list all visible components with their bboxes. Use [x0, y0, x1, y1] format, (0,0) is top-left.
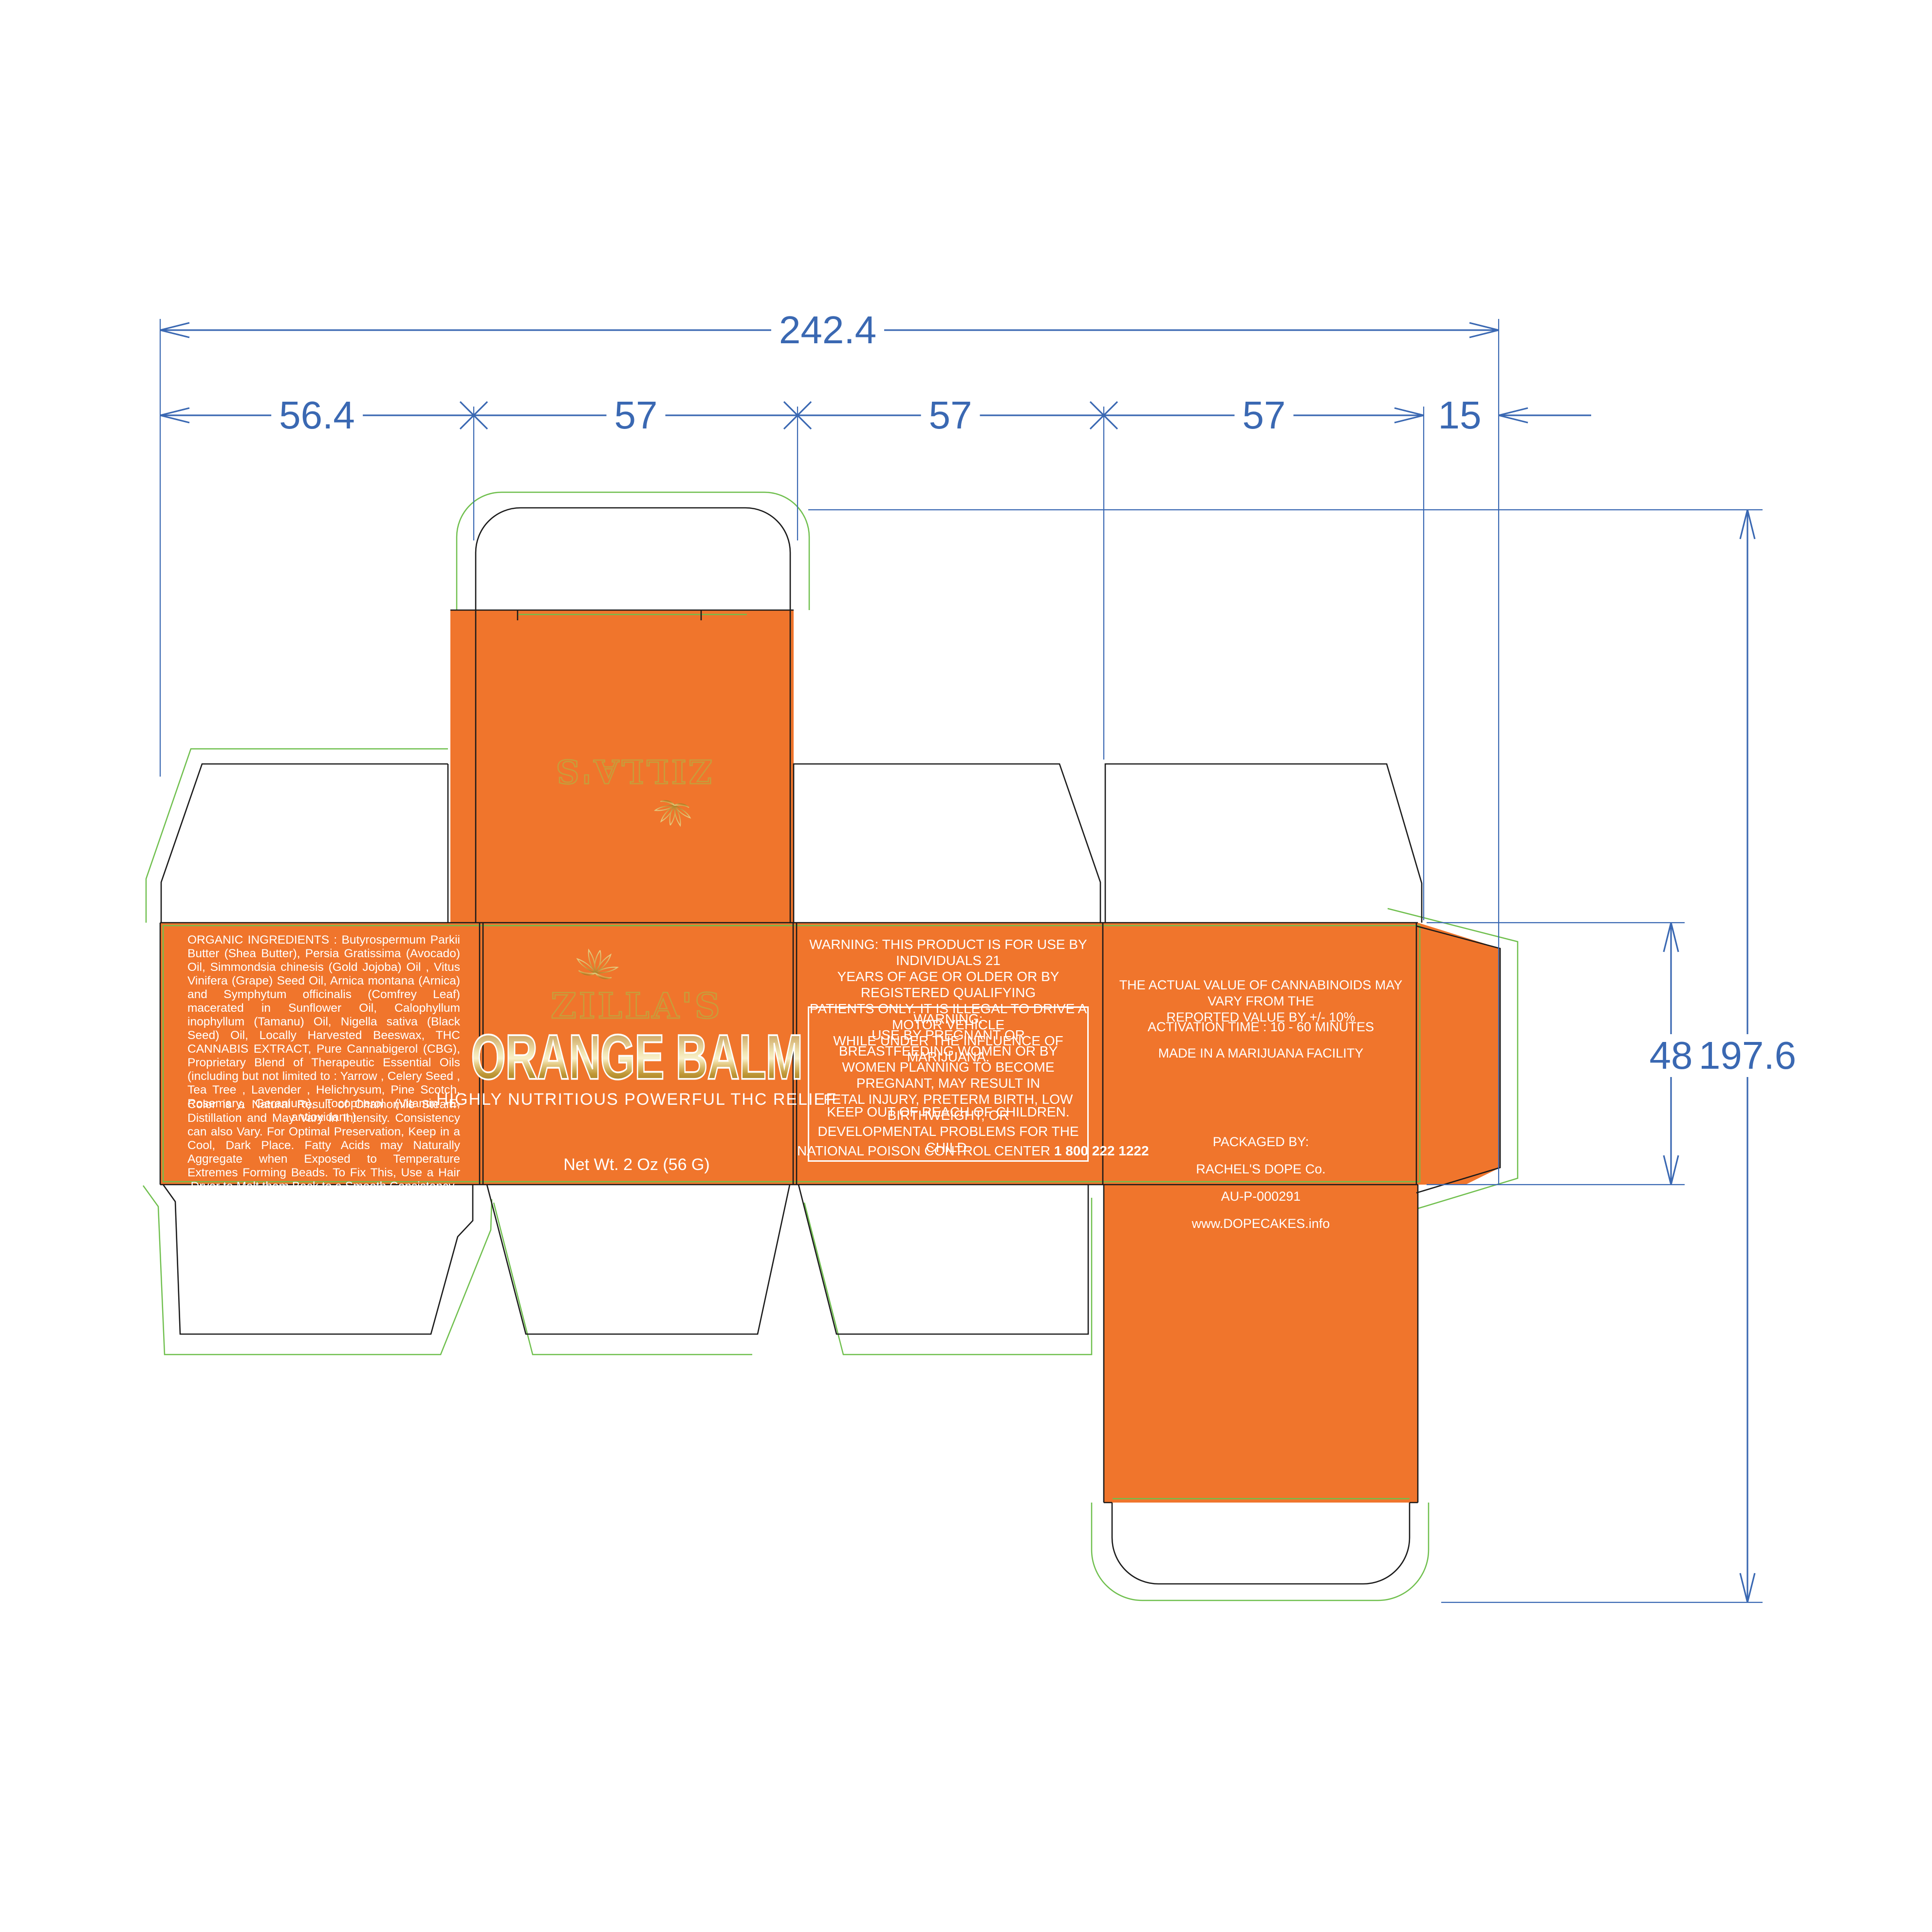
- dieline-canvas: 242.4 56.4 57 57 57 15 48 197.6: [0, 0, 1932, 1932]
- brand-logo-flipped: ZILLA'S: [511, 752, 755, 825]
- cannabis-leaf-icon: [653, 786, 695, 827]
- poison-control-label: NATIONAL POISON CONTROL CENTER: [797, 1143, 1054, 1158]
- storage-text: Color is a Natural Result of Chamomile S…: [187, 1098, 460, 1193]
- dim-segment-5: 15: [1430, 394, 1489, 437]
- dim-total-width: 242.4: [771, 309, 884, 352]
- license-number: AU-P-000291: [1109, 1189, 1413, 1203]
- dim-total-height: 197.6: [1691, 1034, 1804, 1077]
- dim-segment-3: 57: [921, 394, 980, 437]
- keep-out-text: KEEP OUT OF REACH OF CHILDREN.: [804, 1104, 1093, 1120]
- activation-time-text: ACTIVATION TIME : 10 - 60 MINUTES: [1109, 1019, 1413, 1035]
- glue-flap: [1418, 923, 1500, 1185]
- dim-segment-4: 57: [1235, 394, 1294, 437]
- packaged-by-label: PACKAGED BY:: [1109, 1135, 1413, 1149]
- front-panel-content: ZILLA'S ORANGE BALM HIGHLY NUTRITIOUS PO…: [484, 923, 789, 1185]
- packaged-by-block: PACKAGED BY: RACHEL'S DOPE Co. AU-P-0002…: [1109, 1121, 1413, 1244]
- product-name: ORANGE BALM: [471, 1030, 802, 1085]
- company-name: RACHEL'S DOPE Co.: [1109, 1162, 1413, 1176]
- facility-text: MADE IN A MARIJUANA FACILITY: [1109, 1045, 1413, 1061]
- warning-panel-content: WARNING: THIS PRODUCT IS FOR USE BY INDI…: [797, 923, 1099, 1185]
- brand-name-top: ZILLA'S: [511, 752, 755, 790]
- poison-control-line: NATIONAL POISON CONTROL CENTER 1 800 222…: [797, 1143, 1099, 1159]
- pregnancy-warning-title: WARNING:: [813, 1011, 1083, 1027]
- ingredients-panel-content: ORGANIC INGREDIENTS : Butyrospermum Park…: [160, 923, 481, 1185]
- brand-name-front: ZILLA'S: [484, 985, 789, 1026]
- net-weight: Net Wt. 2 Oz (56 G): [563, 1155, 709, 1174]
- website-url: www.DOPECAKES.info: [1109, 1217, 1413, 1230]
- info-panel-content: THE ACTUAL VALUE OF CANNABINOIDS MAY VAR…: [1104, 923, 1418, 1185]
- ingredients-text: ORGANIC INGREDIENTS : Butyrospermum Park…: [187, 933, 460, 1124]
- dim-segment-1: 56.4: [271, 394, 363, 437]
- pregnancy-warning-box: WARNING: USE BY PREGNANT OR BREASTFEEDIN…: [808, 1006, 1089, 1162]
- dim-segment-2: 57: [607, 394, 666, 437]
- cannabinoids-text: THE ACTUAL VALUE OF CANNABINOIDS MAY VAR…: [1109, 977, 1413, 1025]
- product-tagline: HIGHLY NUTRITIOUS POWERFUL THC RELIEF: [436, 1090, 837, 1109]
- top-panel-content: ZILLA'S: [476, 610, 790, 923]
- pregnancy-warning-text: USE BY PREGNANT OR BREASTFEEDING WOMEN O…: [813, 1027, 1083, 1155]
